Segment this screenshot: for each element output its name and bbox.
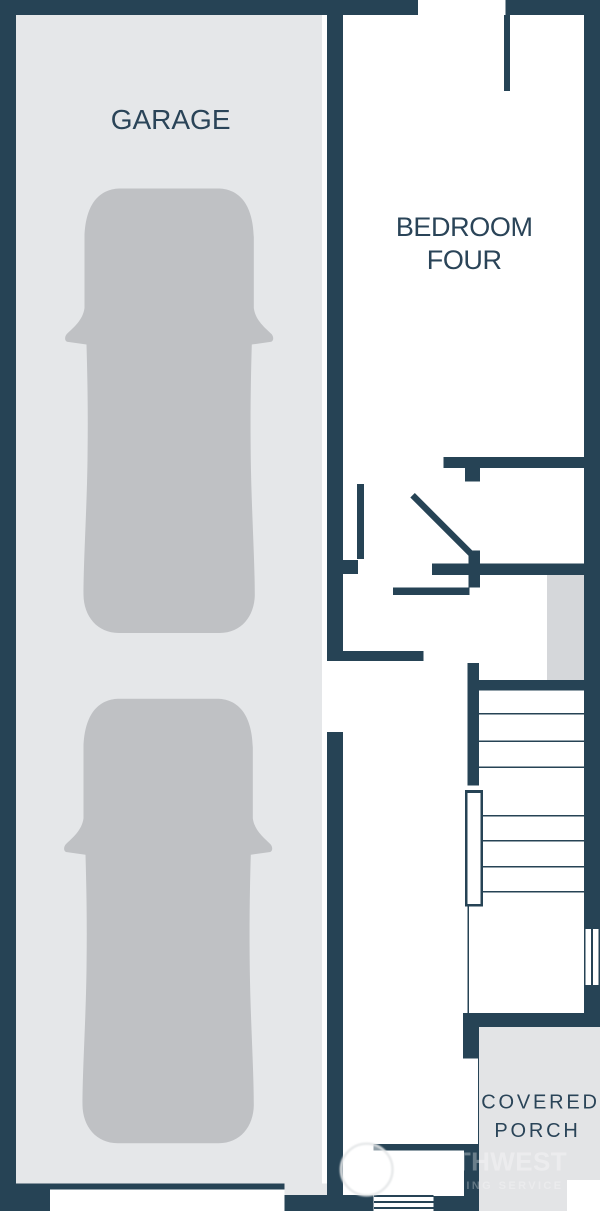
svg-text:GARAGE: GARAGE — [111, 104, 231, 135]
svg-text:PORCH: PORCH — [494, 1120, 580, 1142]
svg-text:COVERED: COVERED — [481, 1092, 600, 1114]
svg-text:BEDROOM: BEDROOM — [396, 212, 533, 242]
svg-text:NORTHWEST: NORTHWEST — [396, 1147, 567, 1177]
svg-text:FOUR: FOUR — [427, 245, 502, 275]
svg-text:LISTING SERVICE: LISTING SERVICE — [433, 1180, 564, 1192]
